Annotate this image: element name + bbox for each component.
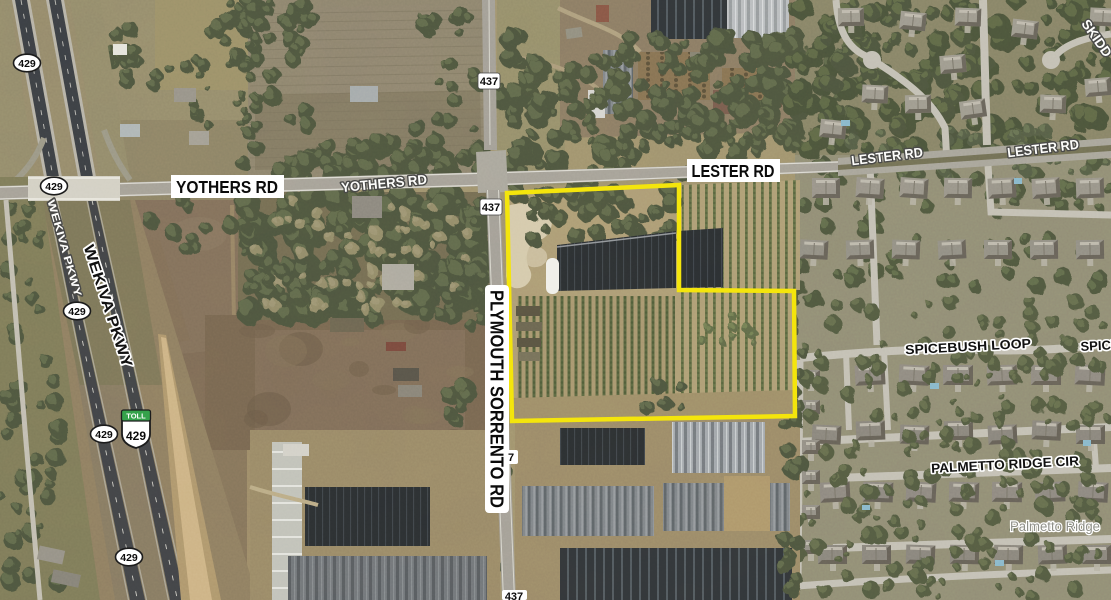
svg-text:437: 437 (480, 76, 498, 88)
svg-text:429: 429 (68, 306, 86, 318)
svg-text:7: 7 (508, 452, 514, 464)
svg-text:429: 429 (95, 429, 113, 441)
svg-text:437: 437 (505, 591, 523, 600)
svg-text:TOLL: TOLL (126, 412, 146, 421)
svg-text:PLYMOUTH SORRENTO RD: PLYMOUTH SORRENTO RD (487, 290, 507, 508)
svg-text:437: 437 (482, 202, 500, 214)
svg-text:Palmetto Ridge: Palmetto Ridge (1010, 519, 1100, 534)
svg-text:429: 429 (120, 552, 138, 564)
svg-text:429: 429 (18, 58, 36, 70)
svg-text:429: 429 (45, 181, 63, 193)
svg-text:YOTHERS RD: YOTHERS RD (176, 177, 278, 197)
svg-text:LESTER RD: LESTER RD (692, 161, 775, 181)
svg-text:429: 429 (126, 429, 146, 443)
svg-text:SPICE: SPICE (1080, 337, 1111, 354)
